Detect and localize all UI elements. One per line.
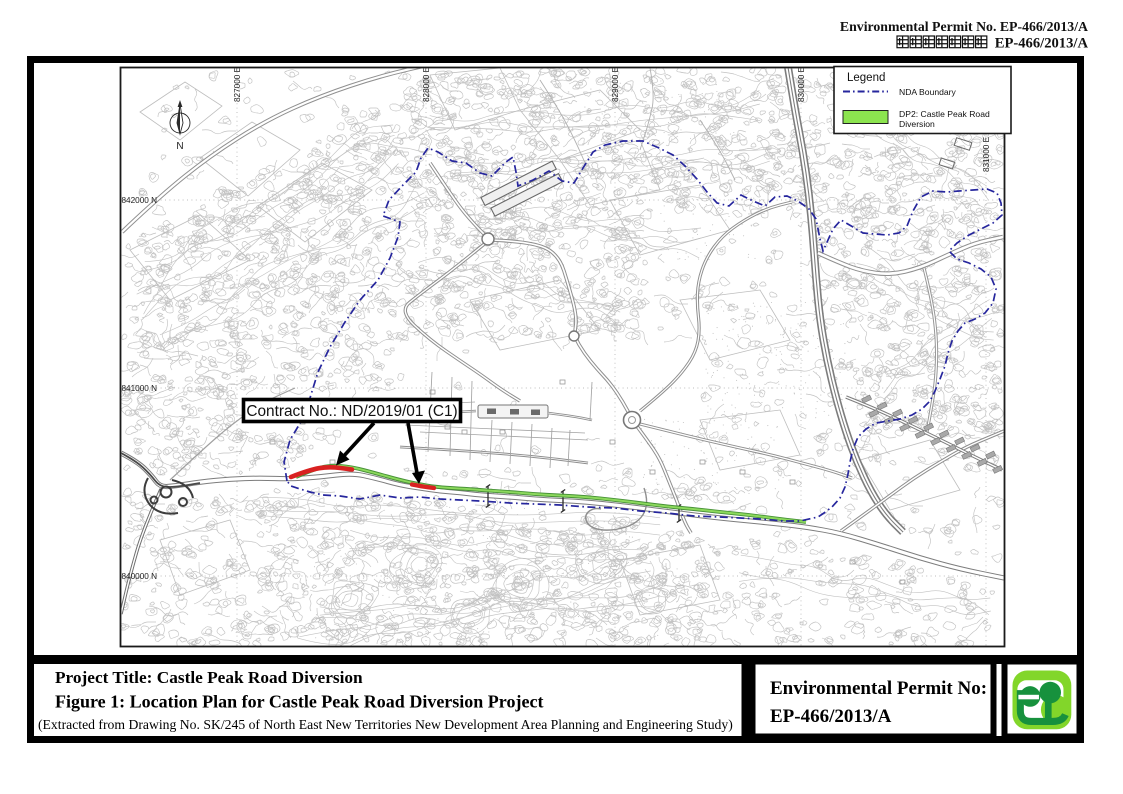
- svg-text:(Extracted from Drawing No. SK: (Extracted from Drawing No. SK/245 of No…: [38, 717, 733, 733]
- svg-text:Legend: Legend: [847, 72, 885, 84]
- svg-text:831000 E: 831000 E: [982, 136, 991, 172]
- svg-text:Figure 1: Location Plan for Ca: Figure 1: Location Plan for Castle Peak …: [55, 692, 543, 712]
- svg-text:N: N: [176, 141, 183, 152]
- svg-text:NDA Boundary: NDA Boundary: [899, 87, 957, 97]
- svg-text:Diversion: Diversion: [899, 119, 935, 129]
- svg-text:DP2: Castle Peak Road: DP2: Castle Peak Road: [899, 109, 990, 119]
- svg-text:842000 N: 842000 N: [122, 196, 158, 205]
- svg-text:Project Title: Castle Peak Roa: Project Title: Castle Peak Road Diversio…: [55, 668, 363, 687]
- svg-text:Contract No.: ND/2019/01 (C1): Contract No.: ND/2019/01 (C1): [246, 403, 457, 420]
- svg-text:830000 E: 830000 E: [797, 66, 806, 102]
- svg-text:827000 E: 827000 E: [233, 66, 242, 102]
- svg-text:828000 E: 828000 E: [422, 66, 431, 102]
- svg-text:840000 N: 840000 N: [122, 572, 158, 581]
- svg-text:EP-466/2013/A: EP-466/2013/A: [995, 36, 1089, 52]
- svg-text:Environmental Permit No:: Environmental Permit No:: [770, 678, 987, 699]
- svg-text:841000 N: 841000 N: [122, 384, 158, 393]
- svg-text:Environmental Permit No. EP-46: Environmental Permit No. EP-466/2013/A: [840, 19, 1088, 34]
- svg-text:829000 E: 829000 E: [611, 66, 620, 102]
- svg-text:EP-466/2013/A: EP-466/2013/A: [770, 706, 892, 727]
